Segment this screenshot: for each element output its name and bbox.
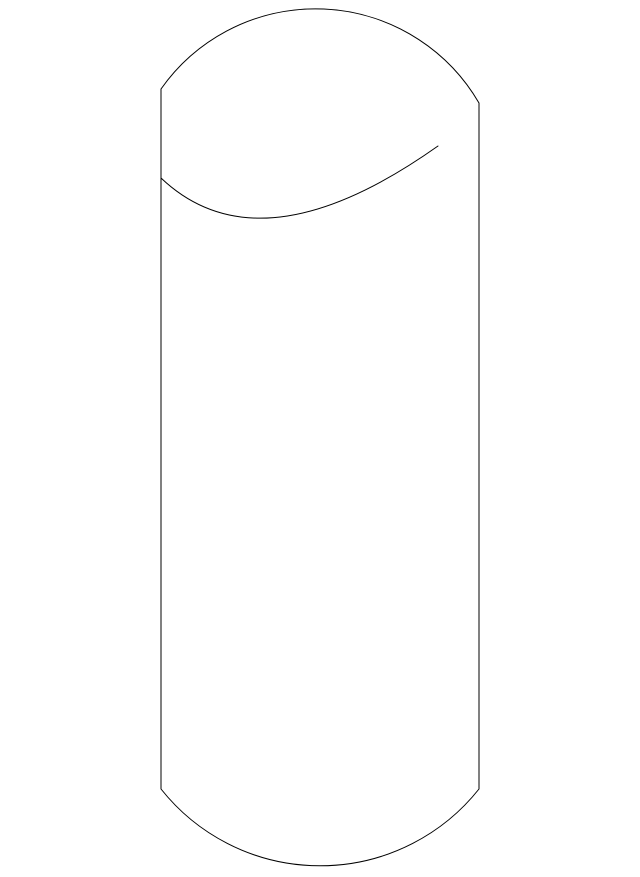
part-diagram-canvas: [0, 0, 640, 877]
cylindrical-pin-illustration: [0, 0, 640, 877]
pin-dome-edge-curve: [161, 146, 438, 218]
pin-outline: [161, 9, 479, 866]
